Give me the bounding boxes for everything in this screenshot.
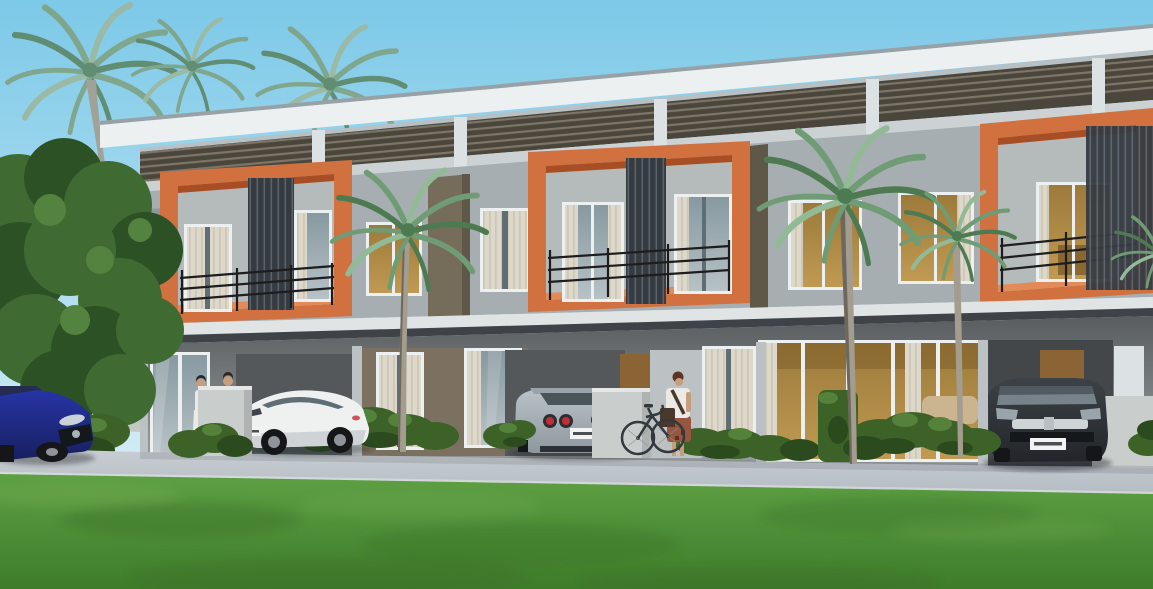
divider-fin — [750, 144, 768, 314]
bike-seat — [644, 404, 653, 408]
lawn — [0, 474, 1153, 589]
vertical-louver-screen — [1086, 126, 1153, 290]
brand-emblem — [1044, 417, 1054, 430]
vertical-louver-screen — [626, 158, 666, 304]
headlight — [1080, 408, 1101, 420]
brand-emblem — [72, 430, 80, 438]
black-suv — [988, 378, 1108, 462]
vertical-louver-screen — [248, 178, 294, 310]
balcony-window — [674, 194, 732, 294]
window — [480, 208, 530, 292]
render-canvas — [0, 0, 1153, 589]
balcony-frame-left — [160, 160, 352, 324]
architectural-rendering — [0, 0, 1153, 589]
balcony-frame-middle — [528, 141, 750, 312]
headlight — [996, 408, 1018, 420]
tail-light — [352, 416, 360, 421]
balcony-frame-right — [980, 108, 1153, 304]
balcony-window — [562, 202, 624, 302]
